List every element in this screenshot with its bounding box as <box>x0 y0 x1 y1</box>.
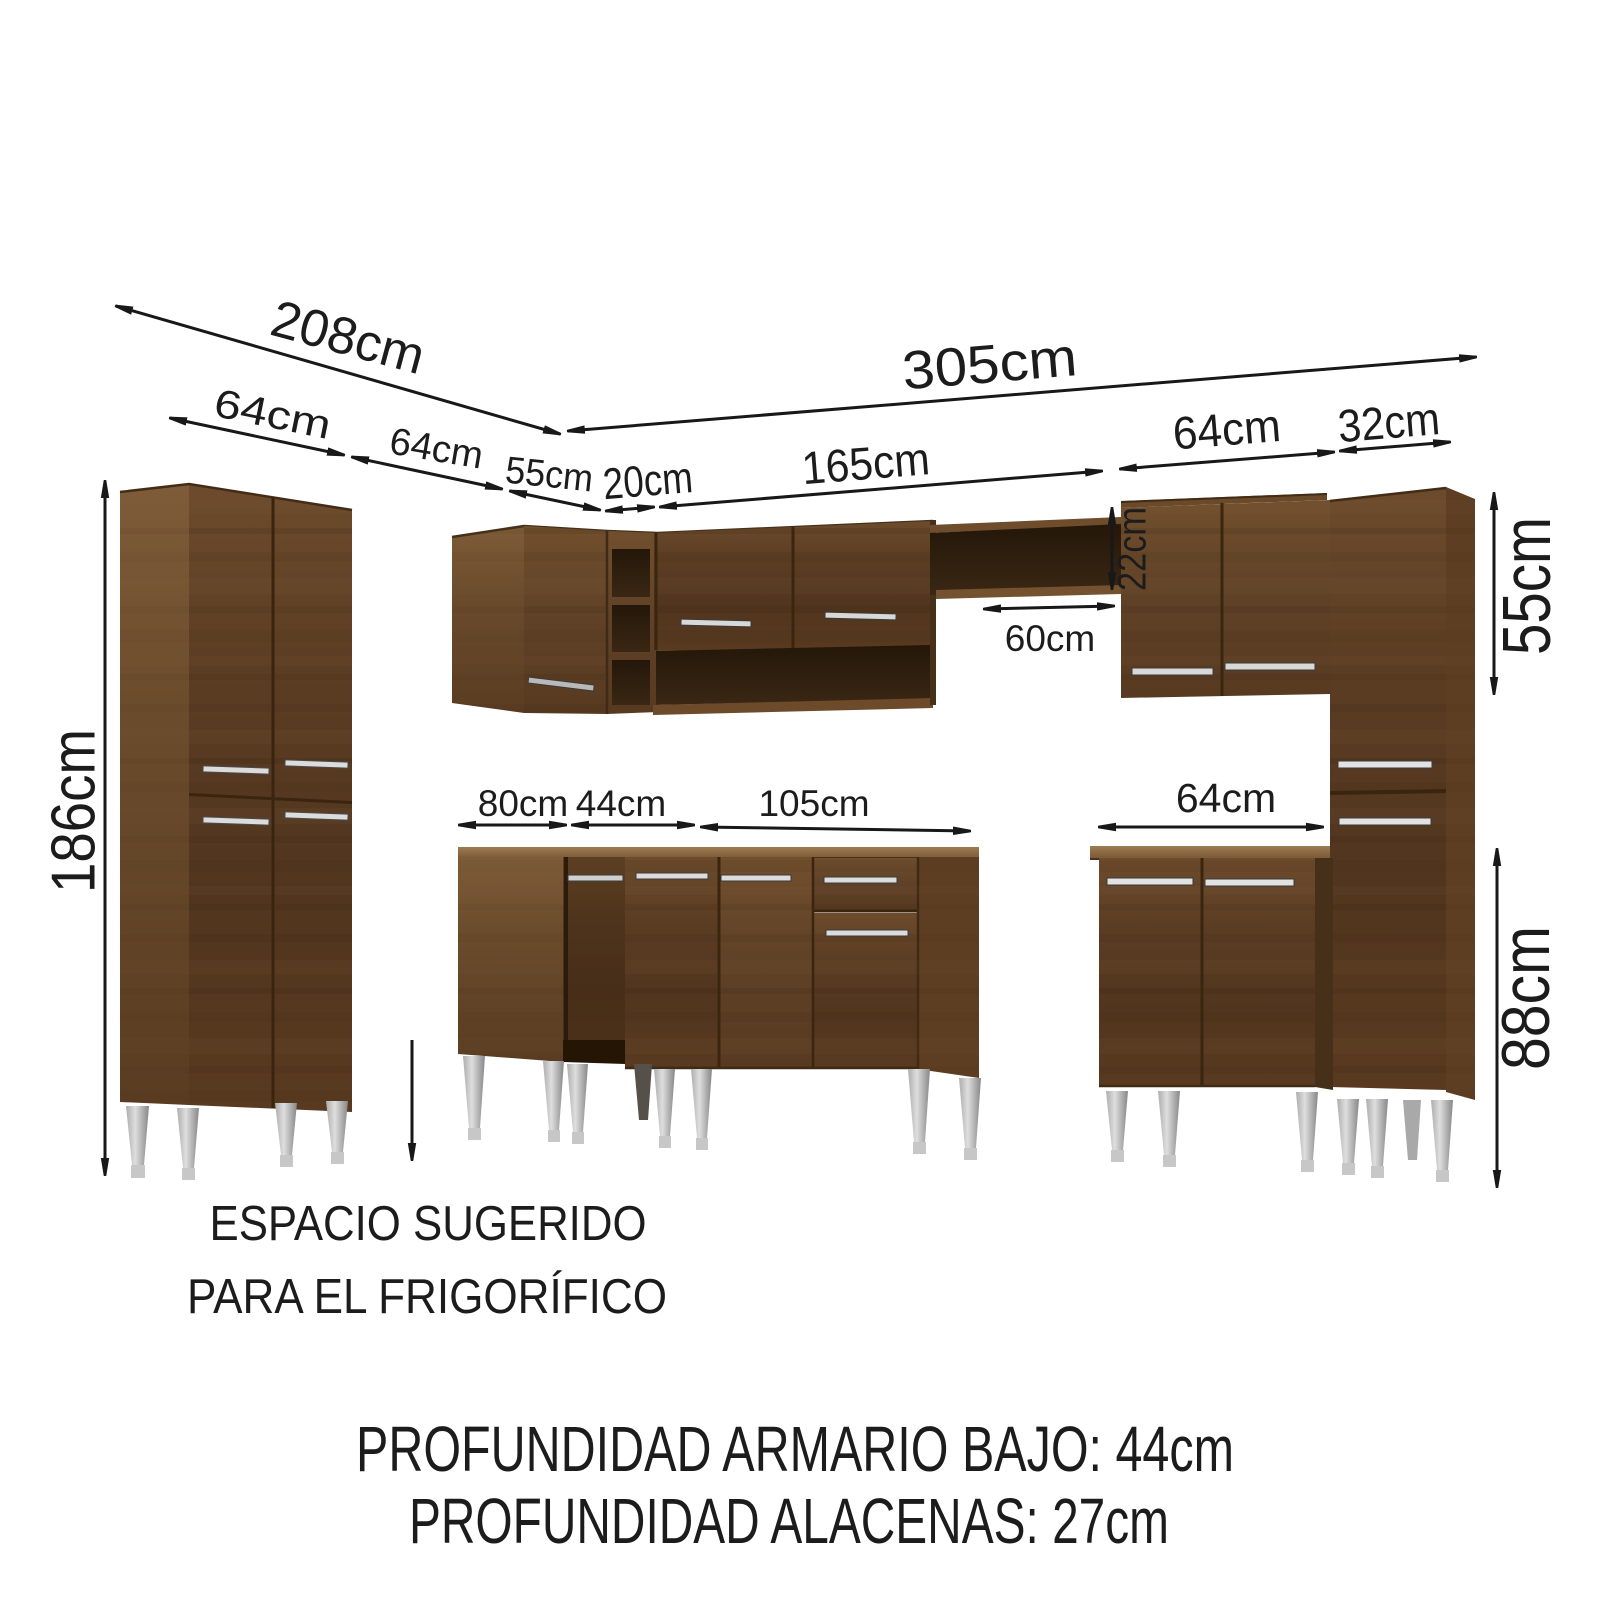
svg-text:165cm: 165cm <box>800 432 932 494</box>
svg-text:PROFUNDIDAD ARMARIO BAJO: 44cm: PROFUNDIDAD ARMARIO BAJO: 44cm <box>356 1413 1234 1485</box>
svg-text:22cm: 22cm <box>1111 507 1155 591</box>
svg-text:20cm: 20cm <box>601 453 695 509</box>
svg-text:186cm: 186cm <box>39 729 108 893</box>
svg-text:PARA EL FRIGORÍFICO: PARA EL FRIGORÍFICO <box>187 1270 667 1324</box>
svg-text:60cm: 60cm <box>1005 618 1095 659</box>
svg-text:64cm: 64cm <box>1171 399 1283 459</box>
svg-text:88cm: 88cm <box>1488 926 1564 1070</box>
svg-text:32cm: 32cm <box>1336 392 1442 452</box>
svg-text:44cm: 44cm <box>576 783 666 824</box>
svg-text:64cm: 64cm <box>1176 775 1276 821</box>
svg-text:ESPACIO SUGERIDO: ESPACIO SUGERIDO <box>210 1197 647 1251</box>
svg-text:PROFUNDIDAD ALACENAS: 27cm: PROFUNDIDAD ALACENAS: 27cm <box>409 1485 1169 1557</box>
svg-text:80cm: 80cm <box>478 783 568 824</box>
svg-text:55cm: 55cm <box>1489 517 1565 655</box>
svg-text:105cm: 105cm <box>758 783 869 824</box>
